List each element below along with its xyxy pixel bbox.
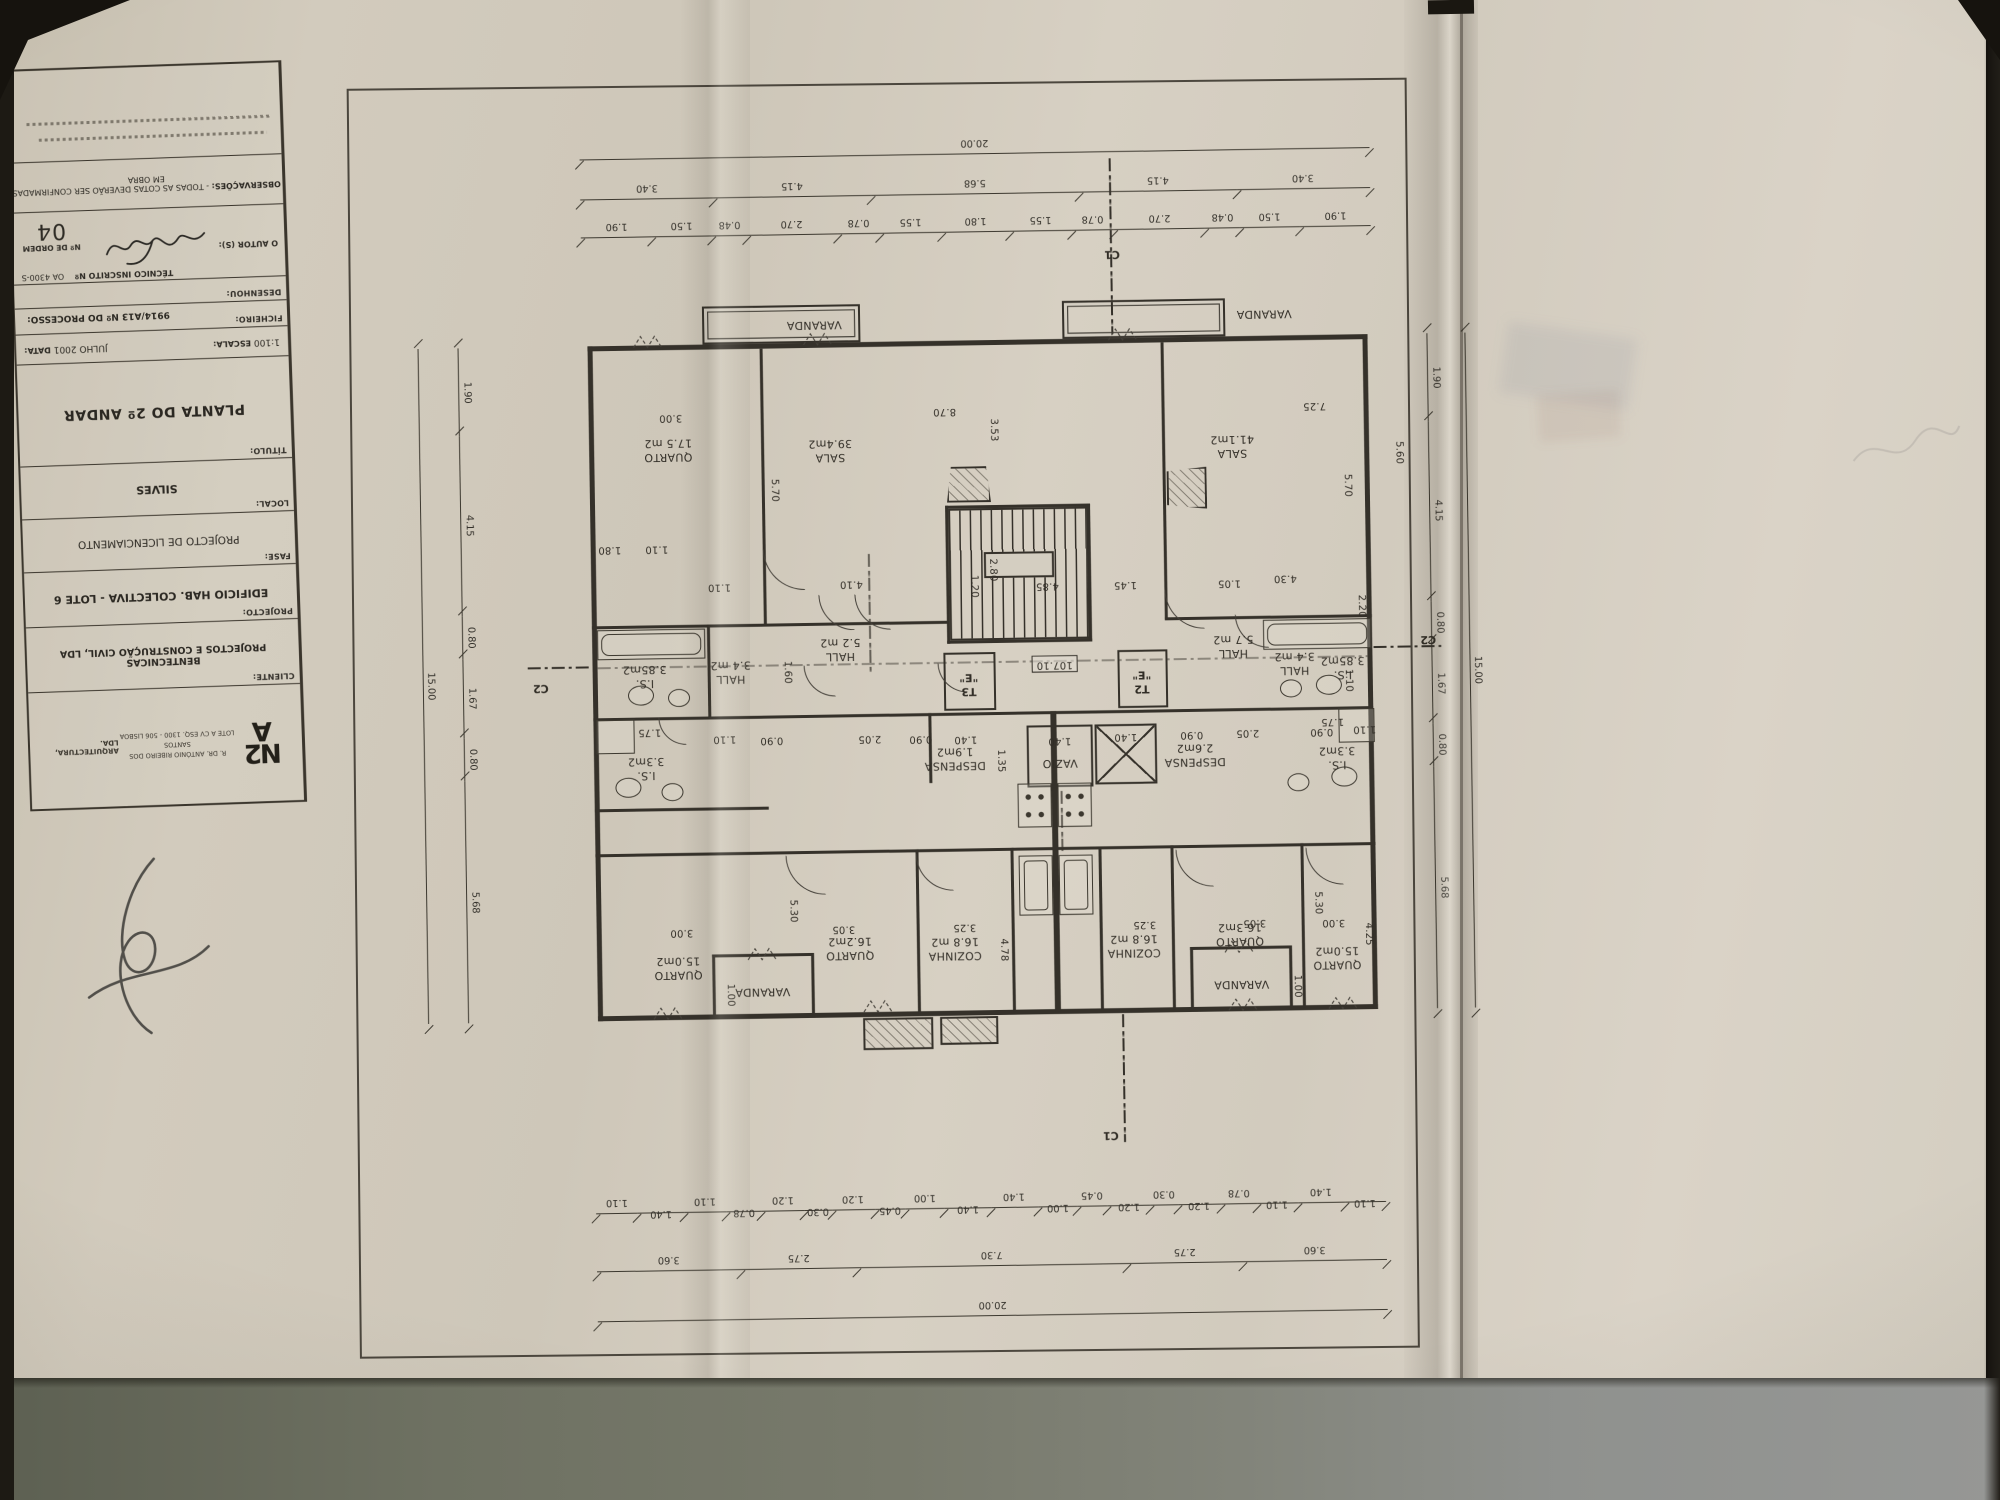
plan-label-varanda_tl: VARANDA: [786, 318, 841, 333]
plan-label-d140a: 1.40: [954, 732, 977, 745]
wall: [1170, 845, 1176, 1009]
dim-segment: 1.20: [1107, 1190, 1150, 1207]
plan-label-d145: 1.45: [1114, 578, 1137, 591]
fix-burner: [1057, 783, 1092, 828]
dim-chain-bottom-mid: 3.602.757.302.753.60: [597, 1244, 1387, 1272]
wall: [1190, 947, 1194, 1009]
plan-label-c2_l: C2: [533, 681, 549, 695]
plan-label-d325l: 3.25: [953, 920, 976, 933]
dim-value: 1.50: [1258, 210, 1280, 221]
plan-label-d305r: 3.05: [1243, 916, 1266, 929]
plan-label-d110c: 1.10: [1341, 669, 1354, 692]
dim-value: 2.75: [1174, 1246, 1196, 1257]
wall: [712, 954, 716, 1016]
dim-value: 1.40: [650, 1208, 672, 1219]
dim-segment: 1.90: [1300, 210, 1371, 227]
plan-label-d135: 1.35: [994, 749, 1007, 772]
dim-segment: 4.15: [1428, 421, 1447, 601]
dim-segment: 1.10: [1344, 1186, 1386, 1203]
window-mark: [747, 947, 777, 960]
plan-label-despensa_l: DESPENSA 1.9m2: [924, 744, 986, 772]
plan-label-c2_r: C2: [1420, 632, 1436, 646]
dim-value: 3.60: [1304, 1244, 1326, 1255]
plan-label-d870: 8.70: [933, 404, 956, 417]
plan-label-d280s: 2.80: [986, 558, 999, 581]
sinkin: [1024, 860, 1049, 910]
plan-label-sala_l: SALA 39.4m2: [808, 436, 852, 464]
window-mark: [653, 1007, 683, 1020]
dim-value: 0.78: [1082, 213, 1104, 224]
wall: [1362, 334, 1378, 1009]
dim-value: 1.67: [466, 688, 477, 710]
dim-value: 1.10: [606, 1197, 628, 1208]
dim-value: 1.10: [694, 1195, 716, 1206]
dim-value: 0.48: [718, 219, 740, 230]
photo-of-floor-plan: OBSERVAÇÕES: - TODAS AS COTAS DEVERÃO SE…: [0, 0, 2000, 1500]
tubin: [1267, 622, 1367, 646]
dim-segment: 15.00: [1464, 332, 1491, 1007]
dim-chain-top-detail: 1.901.500.482.700.781.551.801.550.782.70…: [581, 210, 1371, 238]
dim-value: 5.68: [1438, 876, 1449, 898]
wall: [588, 346, 604, 1021]
paper-sheet: OBSERVAÇÕES: - TODAS AS COTAS DEVERÃO SE…: [8, 0, 1986, 1386]
plan-label-d140c: 1.40: [1114, 730, 1137, 743]
dim-chain-right-side: 1.904.150.801.670.805.68: [1426, 333, 1453, 1008]
fix-round: [1280, 679, 1302, 697]
drawing-sheet: OBSERVAÇÕES: - TODAS AS COTAS DEVERÃO SE…: [1, 0, 1993, 1396]
wall: [811, 953, 815, 1015]
dim-segment: 1.40: [944, 1192, 991, 1209]
dim-segment: 1.67: [462, 659, 479, 738]
plan-label-t2: T2 "E": [1132, 668, 1151, 696]
window-mark: [1107, 328, 1137, 341]
dim-value: 2.70: [1148, 212, 1170, 223]
arc: [1175, 849, 1214, 888]
dim-segment: 3.40: [1237, 172, 1370, 190]
dim-value: 0.78: [1228, 1187, 1250, 1198]
dim-segment: 2.70: [746, 218, 838, 235]
wall: [1098, 846, 1104, 1010]
dim-value: 1.20: [1188, 1200, 1210, 1211]
dim-value: 1.10: [1354, 1197, 1376, 1208]
dim-segment: 5.68: [1433, 766, 1453, 1008]
dim-value: 1.20: [1118, 1201, 1140, 1212]
plan-label-d305l: 3.05: [832, 922, 855, 935]
window-mark: [802, 333, 832, 346]
plan-label-d090a: 0.90: [760, 733, 783, 746]
dim-value: 4.15: [463, 515, 474, 537]
dim-value: 0.80: [1436, 734, 1447, 756]
plan-label-d175l: 1.75: [638, 725, 661, 738]
arc: [1305, 847, 1344, 886]
plan-label-coz_r: COZINHA 16.8 m2: [1107, 932, 1161, 960]
dim-value: 1.55: [900, 216, 922, 227]
dim-segment: 1.10: [596, 1198, 638, 1215]
plan-label-d110e: 1.10: [1353, 722, 1376, 735]
dim-segment: 1.55: [880, 217, 942, 234]
plan-label-d220: 2.20: [1354, 595, 1367, 618]
plan-label-d205l: 2.05: [858, 732, 881, 745]
dim-value: 0.78: [733, 1207, 755, 1218]
dim-segment: 0.78: [1221, 1188, 1257, 1205]
dim-value: 0.80: [465, 627, 476, 649]
window-mark: [1228, 998, 1258, 1011]
dim-value: 4.15: [1432, 500, 1443, 522]
plan-label-hall52: HALL 5.2 m2: [820, 635, 861, 663]
dim-value: 0.48: [1211, 211, 1233, 222]
dim-segment: 4.15: [1079, 174, 1237, 192]
dim-value: 20.00: [960, 137, 988, 148]
plan-label-c1_top: C1: [1104, 247, 1120, 261]
dim-value: 1.00: [913, 1192, 935, 1203]
floor-plan: 20.00 3.404.155.684.153.40 1.901.500.482…: [0, 0, 1997, 1401]
plan-label-d485: 4.85: [1036, 579, 1059, 592]
arc: [786, 855, 827, 896]
dim-value: 1.00: [1047, 1202, 1069, 1213]
plan-label-d105: 1.05: [1218, 576, 1241, 589]
faint-stamp-mark-2: [1536, 389, 1621, 443]
plan-label-d325r: 3.25: [1133, 917, 1156, 930]
dim-value: 4.15: [781, 180, 803, 191]
plan-label-q15_l: QUARTO 15.0m2: [654, 954, 703, 982]
plan-label-d140b: 1.40: [1048, 734, 1071, 747]
plan-label-varanda_br: VARANDA: [1214, 977, 1269, 992]
plan-label-coz_l: COZINHA 16.8 m2: [928, 935, 982, 963]
dim-segment: 3.40: [580, 182, 713, 200]
dim-segment: 1.20: [1177, 1189, 1220, 1206]
dim-value: 7.30: [981, 1249, 1003, 1260]
dim-value: 1.55: [1030, 214, 1052, 225]
arc: [916, 853, 955, 892]
dim-value: 5.68: [964, 177, 986, 188]
dim-segment: 0.78: [1071, 214, 1113, 231]
dim-value: 3.40: [1292, 172, 1314, 183]
dim-value: 2.70: [781, 218, 803, 229]
plan-label-d570l: 5.70: [767, 479, 780, 502]
dim-value: 20.00: [978, 1299, 1006, 1310]
dd-v: [1122, 1014, 1126, 1142]
dim-value: 3.60: [658, 1254, 680, 1265]
tabletop: [0, 1378, 2000, 1500]
arc: [658, 717, 686, 745]
dim-segment: 1.90: [458, 348, 475, 436]
plan-label-hall34_l: HALL 3.4 m2: [710, 658, 751, 686]
plan-geometry: [0, 0, 1975, 16]
dim-value: 0.80: [467, 749, 478, 771]
dim-segment: 1.40: [637, 1197, 684, 1214]
dim-segment: 5.68: [871, 177, 1079, 196]
dim-value: 1.40: [957, 1203, 979, 1214]
arc: [763, 548, 806, 591]
box-hatch: [1166, 467, 1207, 510]
plan-label-is33_l: I.S. 3.3m2: [628, 754, 665, 782]
window-mark: [1328, 996, 1358, 1009]
fix: [596, 720, 635, 755]
dim-segment: 1.20: [761, 1195, 804, 1212]
dim-segment: 20.00: [598, 1294, 1388, 1322]
dd-h: [528, 666, 594, 669]
dim-chain-top-total: 20.00: [579, 132, 1369, 160]
plan-label-q15_r: QUARTO 15.0m2: [1313, 944, 1362, 972]
dim-chain-right-total: 15.00: [1464, 332, 1491, 1007]
dim-segment: 2.75: [1127, 1246, 1243, 1264]
dim-segment: 0.30: [1150, 1189, 1177, 1205]
dim-chain-left-total: 15.00: [418, 349, 445, 1024]
fix-round: [661, 783, 683, 801]
plan-label-is33_r: I.S. 3.3m2: [1318, 744, 1355, 772]
fix-burner: [1017, 783, 1052, 828]
plan-label-d425: 4.25: [1361, 923, 1374, 946]
plan-label-vazio: VAZIO: [1042, 756, 1078, 770]
plan-label-d205r: 2.05: [1236, 726, 1259, 739]
dim-segment: 2.70: [1113, 213, 1205, 230]
dim-chain-bottom-total: 20.00: [598, 1294, 1388, 1322]
sinkin: [1064, 860, 1089, 910]
dim-value: 2.75: [788, 1252, 810, 1263]
dim-segment: 5.68: [464, 782, 484, 1024]
paper-gap-top: [1428, 0, 1474, 14]
dim-value: 15.00: [1472, 656, 1483, 684]
dim-value: 4.15: [1147, 174, 1169, 185]
dim-value: 0.78: [848, 217, 870, 228]
plan-label-c1_bot: C1: [1103, 1128, 1119, 1142]
plan-label-varanda_tr: VARANDA: [1236, 306, 1291, 321]
fix-round: [668, 689, 690, 707]
dim-segment: 1.10: [1256, 1187, 1298, 1204]
window-mark: [863, 1000, 893, 1013]
dim-segment: 0.45: [1077, 1190, 1107, 1206]
dim-segment: 4.15: [459, 436, 478, 616]
plan-label-d110b: 1.10: [708, 580, 731, 593]
dim-chain-left-side: 1.904.150.801.670.805.68: [458, 348, 485, 1023]
plan-label-d560: 5.60: [1392, 441, 1405, 464]
wall: [595, 807, 769, 813]
dim-segment: 2.75: [741, 1252, 857, 1270]
window-mark: [632, 335, 662, 348]
dim-segment: 20.00: [579, 132, 1369, 160]
dim-segment: 1.90: [581, 221, 652, 238]
plan-label-level: 107.10: [1031, 655, 1077, 672]
dim-value: 1.20: [772, 1194, 794, 1205]
dim-segment: 1.00: [1038, 1191, 1078, 1208]
dim-value: 1.90: [1430, 366, 1441, 388]
plan-label-varanda_bl: VARANDA: [735, 984, 790, 999]
dim-value: 1.80: [965, 215, 987, 226]
plan-label-d570r: 5.70: [1340, 474, 1353, 497]
dim-segment: 0.48: [712, 220, 746, 237]
dim-segment: 15.00: [418, 349, 445, 1024]
dim-segment: 3.60: [597, 1254, 742, 1272]
faint-pencil-mark: [1845, 410, 1966, 481]
plan-label-d725: 7.25: [1303, 399, 1326, 412]
plan-label-d353: 3.53: [986, 418, 999, 441]
fix: [1019, 855, 1054, 916]
dim-segment: 4.15: [713, 180, 871, 198]
fix-round: [1287, 773, 1309, 791]
dim-segment: 1.00: [905, 1193, 945, 1210]
plan-label-d410: 4.10: [840, 577, 863, 590]
dim-segment: 0.48: [1205, 212, 1239, 229]
box-balc: [1062, 298, 1226, 339]
box-hatch: [946, 466, 991, 503]
dim-segment: 0.78: [725, 1196, 761, 1213]
plan-label-despensa_r: DESPENSA 2.6m2: [1164, 741, 1226, 769]
plan-label-d530r: 5.30: [1311, 891, 1324, 914]
plan-label-d120s: 1.20: [967, 575, 980, 598]
plan-label-d430: 4.30: [1274, 571, 1297, 584]
dim-value: 1.10: [1266, 1198, 1288, 1209]
plan-label-d100l: 1.00: [723, 984, 736, 1007]
wall: [592, 621, 949, 630]
dim-segment: 1.80: [941, 216, 1010, 233]
plan-label-d180: 1.80: [598, 543, 621, 556]
dim-value: 1.67: [1435, 673, 1446, 695]
table-edge-right: [1984, 0, 2000, 1500]
dim-value: 0.30: [1153, 1188, 1175, 1199]
plan-label-d100r: 1.00: [1290, 975, 1303, 998]
wall: [760, 349, 767, 626]
dim-segment: 1.67: [1431, 644, 1448, 723]
dim-segment: 0.78: [838, 218, 880, 235]
arc: [1164, 589, 1205, 630]
dim-chain-bottom-detail: 1.101.401.100.781.200.301.200.451.001.40…: [596, 1186, 1386, 1214]
dim-value: 0.45: [879, 1205, 901, 1216]
plan-label-hall57: HALL 5.7 m2: [1213, 632, 1254, 660]
dim-value: 1.90: [605, 221, 627, 232]
plan-label-d300a: 3.00: [659, 411, 682, 424]
dim-value: 1.20: [842, 1193, 864, 1204]
dim-segment: 1.90: [1426, 333, 1443, 421]
dim-segment: 0.30: [804, 1195, 831, 1211]
dim-segment: 0.45: [875, 1194, 905, 1210]
plan-label-q17: QUARTO 17.5 m2: [644, 436, 693, 464]
dim-value: 5.68: [469, 891, 480, 913]
tubin: [601, 633, 701, 657]
fix: [1059, 855, 1094, 916]
plan-label-d300b: 3.00: [670, 926, 693, 939]
plan-label-d478: 4.78: [997, 938, 1010, 961]
box-hatch: [940, 1016, 998, 1045]
plan-label-t3: T3 "E": [959, 671, 978, 699]
dim-segment: 1.50: [651, 220, 712, 237]
plan-label-d160: 1.60: [780, 661, 793, 684]
box-hatch: [863, 1017, 933, 1050]
dim-value: 1.50: [671, 220, 693, 231]
dim-value: 3.40: [636, 182, 658, 193]
dim-chain-top-mid: 3.404.155.684.153.40: [580, 172, 1370, 200]
dim-value: 1.90: [461, 381, 472, 403]
plan-label-d110a: 1.10: [645, 542, 668, 555]
dim-segment: 1.20: [831, 1194, 874, 1211]
dim-segment: 1.10: [684, 1196, 726, 1213]
plan-label-d530l: 5.30: [786, 900, 799, 923]
dim-segment: 1.50: [1239, 211, 1300, 228]
wall: [1010, 848, 1016, 1012]
plan-label-d300c: 3.00: [1322, 915, 1345, 928]
table-edge-left: [0, 0, 14, 1500]
dim-segment: 1.40: [1298, 1187, 1345, 1204]
dim-value: 1.40: [1003, 1191, 1025, 1202]
plan-label-d090d: 0.90: [1310, 724, 1333, 737]
plan-label-d090b: 0.90: [909, 732, 932, 745]
wall: [595, 842, 1375, 857]
dim-value: 1.90: [1324, 209, 1346, 220]
fix: [1263, 618, 1371, 650]
dim-value: 15.00: [426, 672, 437, 700]
dim-segment: 1.55: [1010, 215, 1072, 232]
plan-label-sala_r: SALA 41.1m2: [1210, 432, 1254, 460]
dim-value: 0.45: [1081, 1189, 1103, 1200]
plan-label-is385_l: I.S. 3.85m2: [622, 662, 666, 690]
plan-label-d090c: 0.90: [1180, 728, 1203, 741]
dim-value: 0.80: [1434, 611, 1445, 633]
fix: [597, 629, 705, 661]
arc: [804, 665, 836, 697]
wall: [915, 849, 921, 1013]
plan-labels: VARANDAVARANDAQUARTO 17.5 m2SALA 39.4m2S…: [0, 0, 1975, 16]
handwritten-mark: [58, 846, 230, 1048]
dim-segment: 3.60: [1242, 1244, 1387, 1262]
plan-label-hall34_r: HALL 3.4 m2: [1274, 649, 1315, 677]
dim-segment: 7.30: [857, 1248, 1128, 1268]
plan-label-d110d: 1.10: [713, 732, 736, 745]
plan-label-q162: QUARTO 16.2m2: [826, 934, 875, 962]
dim-segment: 1.40: [991, 1191, 1038, 1208]
dim-value: 0.30: [807, 1206, 829, 1217]
dim-value: 1.40: [1310, 1186, 1332, 1197]
